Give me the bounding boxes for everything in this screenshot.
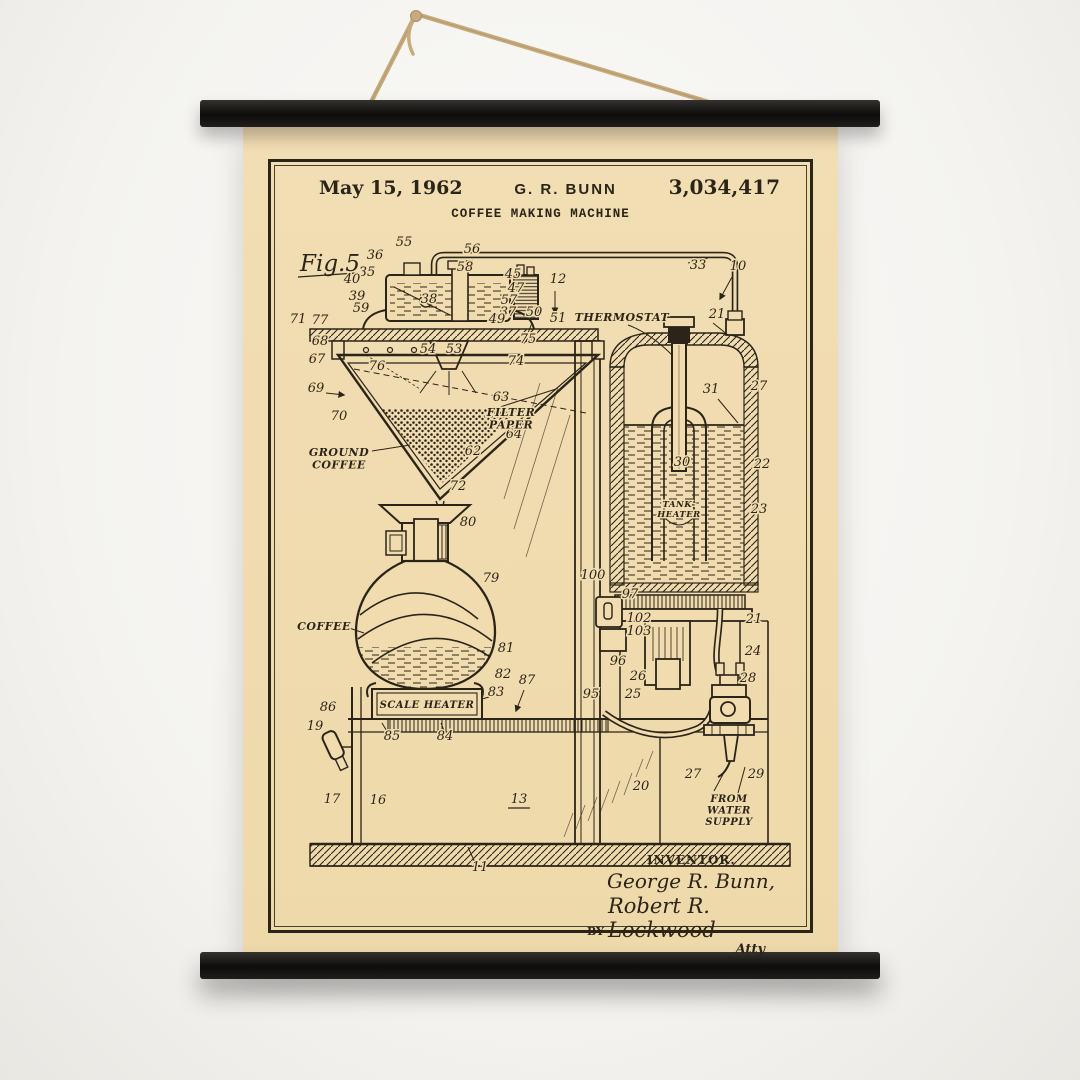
part-number-58: 58 — [457, 260, 474, 275]
part-number-24: 24 — [744, 644, 762, 659]
part-number-30: 30 — [674, 455, 691, 470]
part-number-45: 45 — [504, 267, 522, 282]
switch-box-lower — [600, 629, 626, 651]
scene: { "poster": { "colors": { "wall": "#f5f4… — [0, 0, 1080, 1080]
part-number-22: 22 — [753, 457, 771, 472]
part-number-54: 54 — [420, 342, 437, 357]
patent-author: G. R. BUNN — [514, 181, 617, 198]
diagram-label-filter-paper: FILTERPAPER — [486, 406, 536, 432]
signature-block: INVENTOR. George R. Bunn, BY Robert R. L… — [573, 853, 809, 957]
patent-diagram-svg: Fig.5 — [268, 217, 813, 932]
part-number-17: 17 — [324, 792, 341, 807]
valve-flange — [704, 725, 754, 735]
inventor-caption: INVENTOR. — [647, 853, 809, 867]
part-number-71: 71 — [290, 312, 307, 327]
coffee-carafe — [356, 505, 495, 697]
part-number-25: 25 — [624, 687, 642, 702]
attorney-signature: Robert R. Lockwood — [608, 894, 809, 942]
part-number-69: 69 — [308, 381, 325, 396]
part-number-12: 12 — [550, 272, 567, 287]
part-number-56: 56 — [464, 242, 481, 257]
part-number-33: 33 — [690, 258, 707, 273]
rope-strand-shading — [368, 14, 722, 108]
lid-vent-holes — [364, 348, 417, 353]
part-number-72: 72 — [450, 479, 467, 494]
part-number-59: 59 — [353, 301, 370, 316]
diagram-label-coffee: COFFEE — [297, 620, 351, 633]
part-number-79: 79 — [483, 571, 500, 586]
part-number-81: 81 — [498, 641, 515, 656]
rope-knot — [411, 11, 422, 22]
part-number-21: 21 — [708, 307, 726, 322]
attorney-monogram: Atty — [573, 942, 765, 957]
poster-paper: May 15, 1962 G. R. BUNN 3,034,417 COFFEE… — [243, 127, 838, 958]
part-number-76: 76 — [369, 359, 386, 374]
part-number-28: 28 — [739, 671, 757, 686]
part-number-103: 103 — [627, 624, 652, 639]
tank-wall-left — [610, 367, 624, 585]
part-number-35: 35 — [359, 265, 376, 280]
rope-knot-tail — [409, 22, 413, 54]
part-number-16: 16 — [370, 793, 387, 808]
diagram-label-ground-coffee: GROUNDCOFFEE — [309, 446, 369, 472]
patent-date: May 15, 1962 — [319, 177, 463, 199]
lid-plate — [310, 329, 598, 341]
part-number-38: 38 — [421, 292, 438, 307]
valve-cap — [712, 685, 746, 697]
part-number-29: 29 — [747, 767, 765, 782]
part-number-95: 95 — [583, 687, 600, 702]
part-number-62: 62 — [465, 444, 482, 459]
part-number-31: 31 — [703, 382, 720, 397]
part-number-27: 27 — [684, 767, 702, 782]
part-number-55: 55 — [396, 235, 413, 250]
switch-box — [596, 597, 622, 627]
part-number-50: 50 — [526, 305, 543, 320]
part-number-86: 86 — [320, 700, 337, 715]
faucet — [321, 730, 351, 772]
part-number-23: 23 — [750, 502, 768, 517]
rope-strands — [368, 14, 722, 108]
part-number-97: 97 — [622, 587, 639, 602]
part-number-40: 40 — [343, 272, 361, 287]
by-label: BY — [587, 925, 604, 938]
part-number-53: 53 — [446, 342, 463, 357]
patent-number: 3,034,417 — [669, 175, 780, 199]
part-number-63: 63 — [493, 390, 510, 405]
patent-header: May 15, 1962 G. R. BUNN 3,034,417 — [271, 175, 810, 199]
part-number-100: 100 — [581, 568, 606, 583]
part-number-26: 26 — [629, 669, 647, 684]
lid-and-sprayhead — [310, 329, 598, 395]
diagram-label-thermostat: THERMOSTAT — [575, 311, 670, 324]
part-number-10: 10 — [730, 259, 747, 274]
part-number-51: 51 — [550, 311, 567, 326]
part-number-84: 84 — [437, 729, 454, 744]
part-number-82: 82 — [495, 667, 512, 682]
reservoir-tube — [452, 267, 468, 321]
part-number-67: 67 — [309, 352, 326, 367]
part-number-77: 77 — [312, 313, 329, 328]
part-number-49: 49 — [488, 312, 506, 327]
part-number-20: 20 — [632, 779, 650, 794]
diagram-label-scaleheater: SCALE HEATER — [380, 700, 475, 711]
diagram-label-tank--heater: TANK-HEATER — [656, 500, 701, 520]
pipe-fitting — [726, 319, 744, 335]
diagram-label-from-water-supply: FROMWATERSUPPLY — [705, 794, 753, 828]
part-number-70: 70 — [331, 409, 348, 424]
patent-diagram: Fig.5 — [268, 217, 813, 932]
part-number-80: 80 — [460, 515, 477, 530]
part-number-96: 96 — [610, 654, 627, 669]
dispenser-cup — [656, 659, 680, 689]
part-number-87: 87 — [519, 673, 536, 688]
part-number-68: 68 — [312, 334, 329, 349]
top-hanger-rail — [200, 100, 880, 127]
valve-outlet — [724, 735, 738, 761]
inventor-name: George R. Bunn, — [573, 869, 809, 893]
carafe-neck-block — [414, 519, 438, 565]
part-number-74: 74 — [508, 354, 525, 369]
tank-wall-right — [744, 367, 758, 585]
part-number-27: 27 — [750, 379, 768, 394]
heater-grill — [388, 719, 608, 732]
part-number-13: 13 — [511, 792, 528, 807]
part-number-36: 36 — [367, 248, 384, 263]
part-number-21: 21 — [745, 612, 763, 627]
part-number-75: 75 — [520, 332, 537, 347]
hot-water-tank — [608, 311, 768, 844]
part-number-85: 85 — [384, 729, 401, 744]
part-number-11: 11 — [472, 860, 489, 875]
part-number-19: 19 — [307, 719, 324, 734]
patent-title: COFFEE MAKING MACHINE — [243, 207, 838, 221]
part-number-83: 83 — [488, 685, 505, 700]
